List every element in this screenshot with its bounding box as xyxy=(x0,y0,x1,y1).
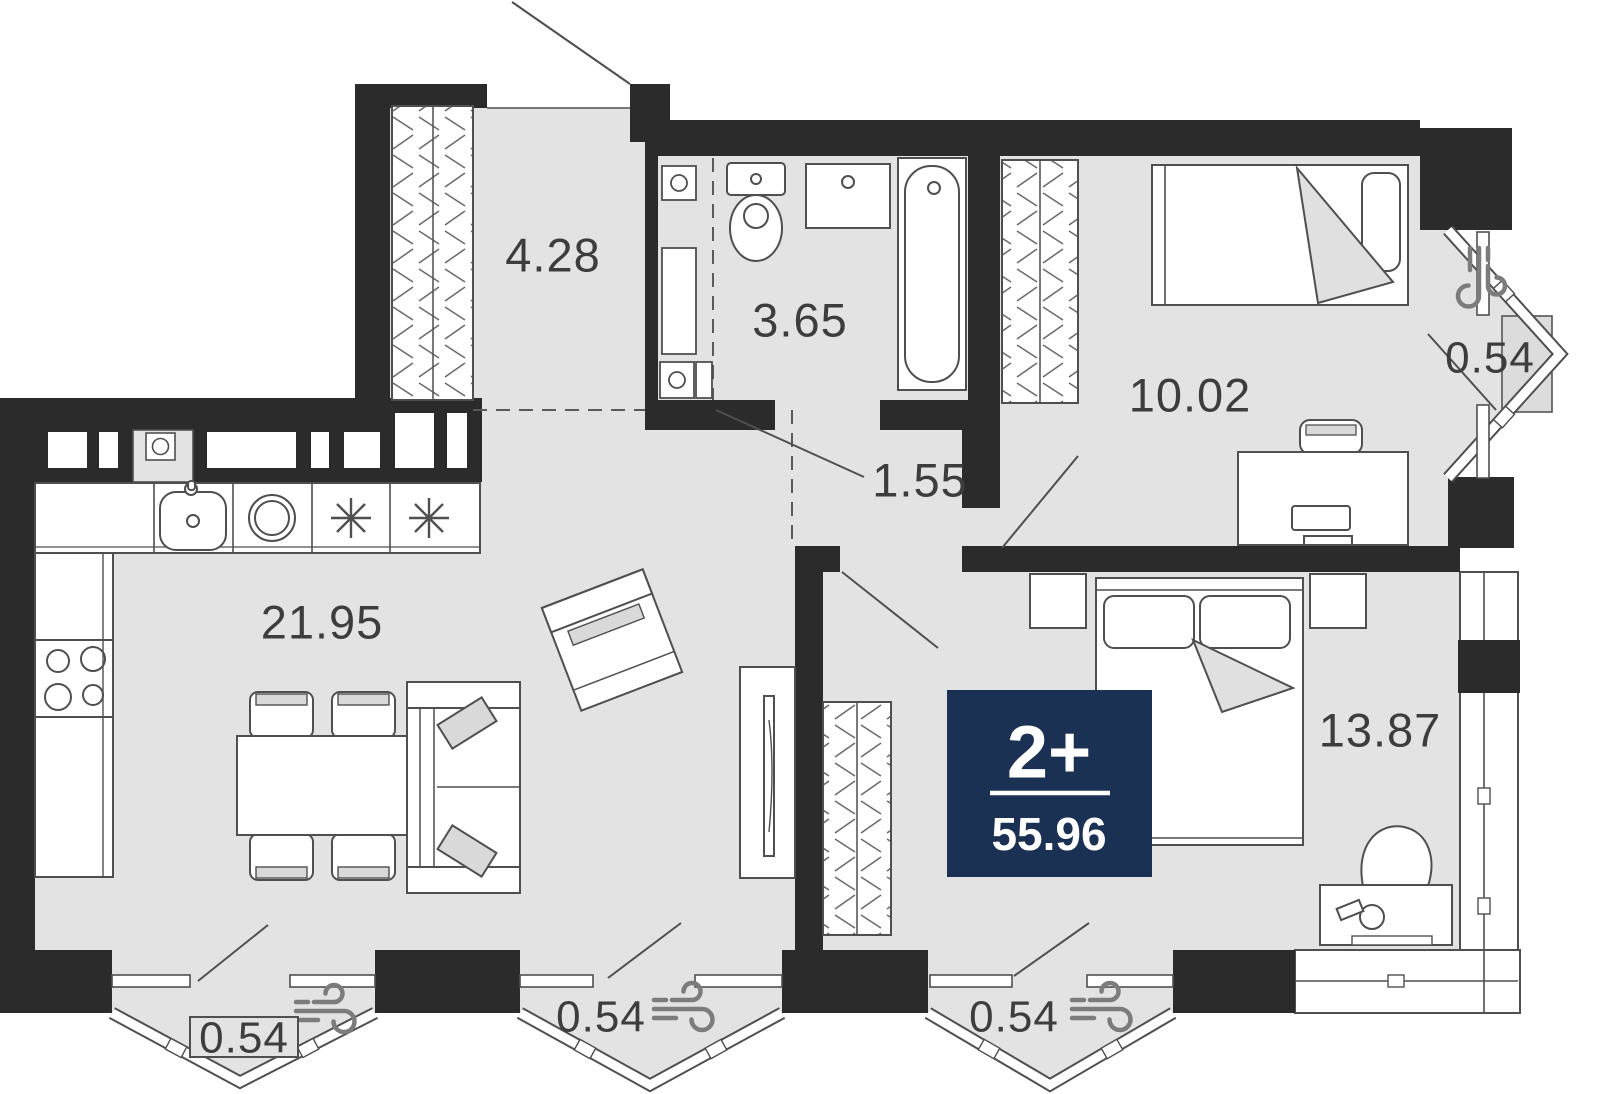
sink-icon xyxy=(806,164,890,228)
master-area-label: 13.87 xyxy=(1319,704,1442,757)
right-bay-area-label: 0.54 xyxy=(1445,334,1535,383)
nightstand-icon xyxy=(1310,574,1366,628)
kitchen-column xyxy=(35,553,113,877)
tv-console-icon xyxy=(740,667,795,878)
bay3-area-label: 0.54 xyxy=(969,993,1059,1042)
vent-shaft-box xyxy=(133,430,193,482)
bay1-area-label: 0.54 xyxy=(199,1014,289,1063)
living-area-label: 21.95 xyxy=(261,596,384,649)
badge-rooms-label: 2+ xyxy=(1007,711,1091,794)
single-bed-icon xyxy=(1152,165,1408,305)
washing-machine-icon xyxy=(249,495,295,541)
bedroom-wardrobe-icon xyxy=(1002,160,1078,403)
bathtub-icon xyxy=(898,158,966,390)
bathroom-area-label: 3.65 xyxy=(752,294,847,347)
apartment-badge: 2+ 55.96 xyxy=(947,690,1152,877)
badge-total-area: 55.96 xyxy=(991,808,1106,860)
entrance-door xyxy=(512,2,630,84)
keyboard-icon xyxy=(1304,536,1352,545)
hallway-wardrobe-icon xyxy=(392,106,473,400)
hallway-area-label: 4.28 xyxy=(505,229,600,282)
corridor-area-label: 1.55 xyxy=(872,454,967,507)
monitor-icon xyxy=(1292,506,1350,530)
bedroom-area-label: 10.02 xyxy=(1129,369,1252,422)
sofa-icon xyxy=(407,682,520,893)
nightstand-icon xyxy=(1030,574,1086,628)
floor-plan: 4.28 3.65 1.55 10.02 21.95 13.87 0.54 0.… xyxy=(0,0,1600,1094)
dining-table xyxy=(237,736,408,835)
master-wardrobe-icon xyxy=(823,702,891,935)
bay2-area-label: 0.54 xyxy=(556,993,646,1042)
toilet-icon xyxy=(727,163,785,261)
